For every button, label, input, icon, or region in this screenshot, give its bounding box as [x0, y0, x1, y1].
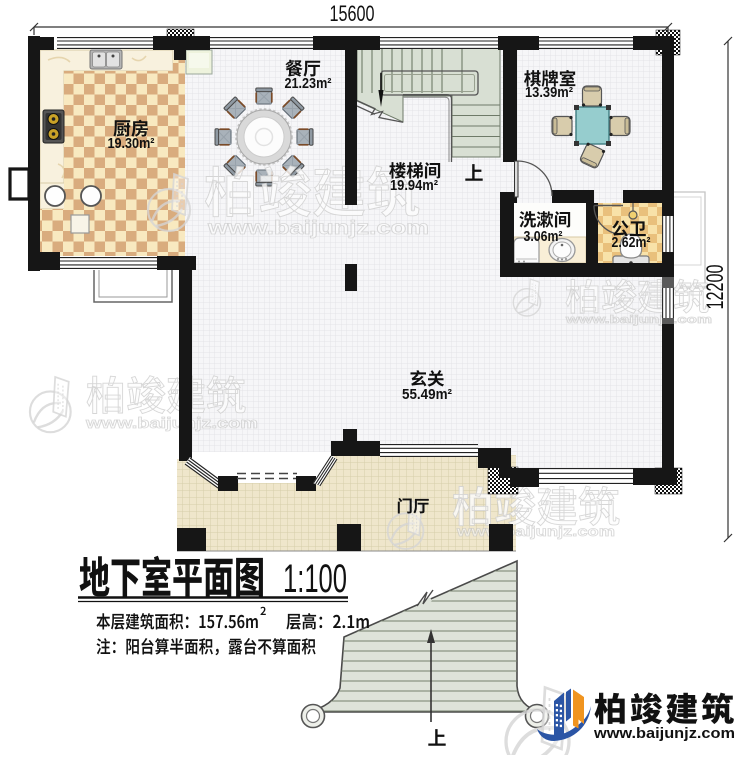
svg-text:2.62m²: 2.62m²	[612, 235, 651, 251]
svg-text:www.baijunjz.com: www.baijunjz.com	[207, 218, 429, 239]
svg-text:12200: 12200	[702, 265, 729, 310]
svg-text:21.23m²: 21.23m²	[285, 76, 332, 92]
svg-text:1:100: 1:100	[283, 557, 347, 601]
svg-text:www.baijunjz.com: www.baijunjz.com	[564, 314, 712, 326]
svg-text:www.baijunjz.com: www.baijunjz.com	[593, 726, 735, 742]
svg-text:19.30m²: 19.30m²	[108, 136, 155, 152]
svg-text:55.49m²: 55.49m²	[402, 387, 452, 403]
svg-text:15600: 15600	[330, 1, 375, 26]
svg-text:www.baijunjz.com: www.baijunjz.com	[85, 416, 258, 432]
svg-text:3.06m²: 3.06m²	[524, 229, 563, 245]
svg-text:19.94m²: 19.94m²	[390, 178, 438, 194]
svg-text:www.baijunjz.com: www.baijunjz.com	[456, 523, 615, 539]
svg-text:13.39m²: 13.39m²	[525, 85, 573, 101]
